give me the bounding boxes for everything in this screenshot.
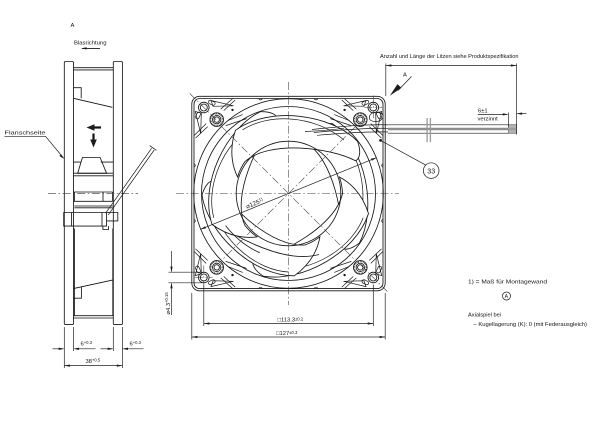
svg-text:33: 33: [427, 168, 435, 175]
svg-text:Axialspiel bei: Axialspiel bei: [468, 313, 501, 319]
svg-text:Blasrichtung: Blasrichtung: [74, 41, 107, 47]
svg-text:Anzahl und Länge der Litzen si: Anzahl und Länge der Litzen siehe Produk…: [380, 54, 519, 60]
svg-text:A: A: [71, 23, 75, 29]
svg-text:Flanschseite: Flanschseite: [5, 131, 46, 137]
svg-text:6±1: 6±1: [478, 109, 488, 115]
svg-text:A: A: [505, 294, 509, 300]
svg-text:A: A: [403, 73, 407, 79]
svg-text:– Kugellagerung (K): 0 (mit Fe: – Kugellagerung (K): 0 (mit Federausglei…: [474, 322, 588, 328]
svg-text:verzinnt: verzinnt: [478, 117, 499, 123]
svg-text:1) = Maß für Montagewand: 1) = Maß für Montagewand: [468, 280, 547, 286]
